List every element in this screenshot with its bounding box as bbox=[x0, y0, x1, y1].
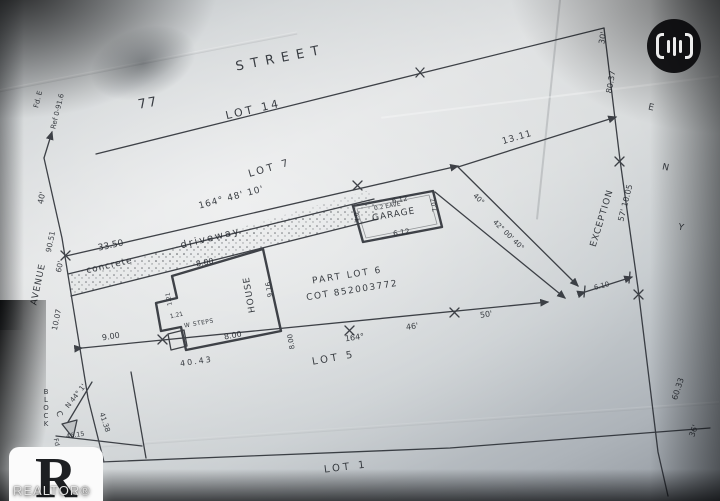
label-block: BLOCK bbox=[42, 388, 49, 428]
exception-diagonal-1 bbox=[458, 167, 578, 286]
gallery-icon-bar bbox=[679, 40, 682, 53]
gallery-icon-right-bracket bbox=[685, 33, 693, 59]
listing-photo-viewer: STREET 77 LOT 14 LOT 7 164° 48' 10' 13.1… bbox=[0, 0, 720, 501]
letter-y: Y bbox=[677, 224, 684, 234]
south-lot-line bbox=[82, 302, 548, 348]
gallery-icon-bar bbox=[667, 40, 670, 53]
gallery-360-icon[interactable] bbox=[647, 19, 701, 73]
gallery-icon-left-bracket bbox=[656, 33, 664, 59]
label-street-number: 77 bbox=[137, 95, 159, 111]
exception-line-1311 bbox=[458, 117, 616, 167]
gallery-icon-bar bbox=[673, 37, 676, 56]
realtor-watermark-text: REALTOR® bbox=[13, 483, 91, 498]
dim-south-50: 50' bbox=[480, 310, 493, 320]
bottom-boundary-line bbox=[100, 428, 710, 462]
dim-south-46: 46' bbox=[406, 322, 419, 332]
right-boundary-line bbox=[604, 28, 668, 496]
